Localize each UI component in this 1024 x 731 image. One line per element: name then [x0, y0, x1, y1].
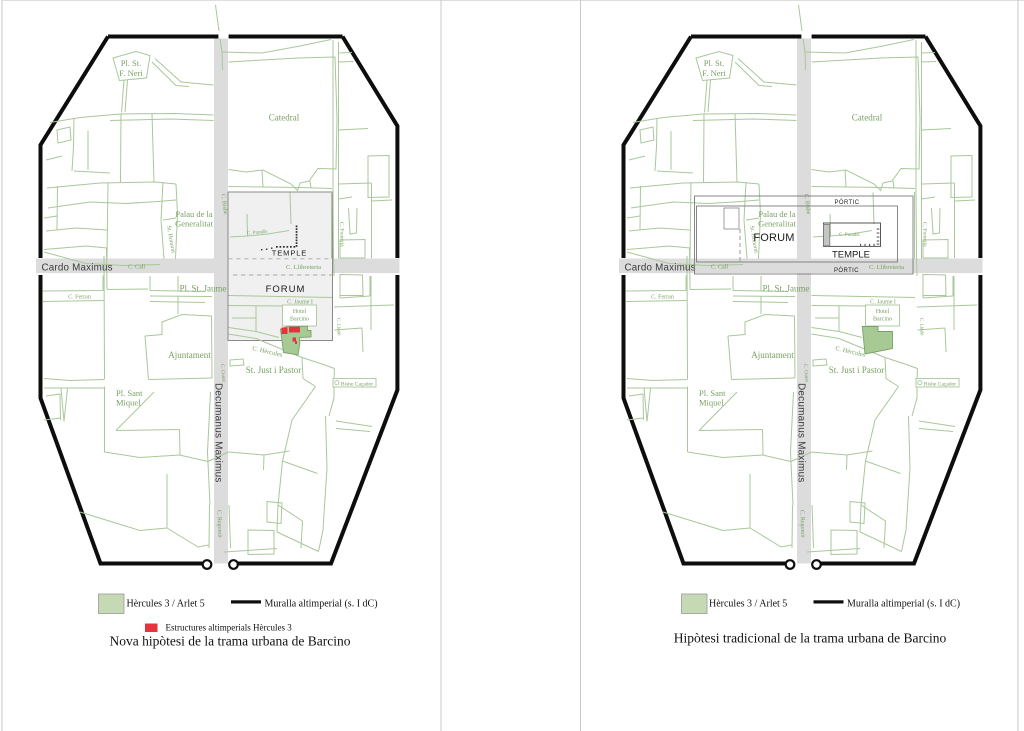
svg-text:FORUM: FORUM: [753, 232, 794, 244]
svg-text:PÒRTIC: PÒRTIC: [835, 199, 860, 206]
svg-text:Nova hipòtesi de la trama urba: Nova hipòtesi de la trama urbana de Barc…: [109, 634, 350, 649]
svg-text:Hèrcules 3 / Arlet 5: Hèrcules 3 / Arlet 5: [709, 599, 787, 610]
svg-text:PÒRTIC: PÒRTIC: [834, 267, 859, 274]
svg-text:C. Paradís: C. Paradís: [839, 233, 860, 238]
svg-text:Hipòtesi tradicional de la tra: Hipòtesi tradicional de la trama urbana …: [674, 631, 947, 646]
svg-text:FORUM: FORUM: [266, 284, 306, 295]
svg-text:TEMPLE: TEMPLE: [832, 250, 870, 261]
svg-text:Hèrcules 3 / Arlet 5: Hèrcules 3 / Arlet 5: [127, 599, 205, 610]
svg-text:Estructures altimperials Hèrcu: Estructures altimperials Hèrcules 3: [166, 623, 293, 633]
svg-text:Muralla altimperial (s. I dC): Muralla altimperial (s. I dC): [265, 599, 378, 610]
svg-text:TEMPLE: TEMPLE: [272, 249, 307, 258]
svg-text:Muralla altimperial (s. I dC): Muralla altimperial (s. I dC): [847, 599, 960, 610]
